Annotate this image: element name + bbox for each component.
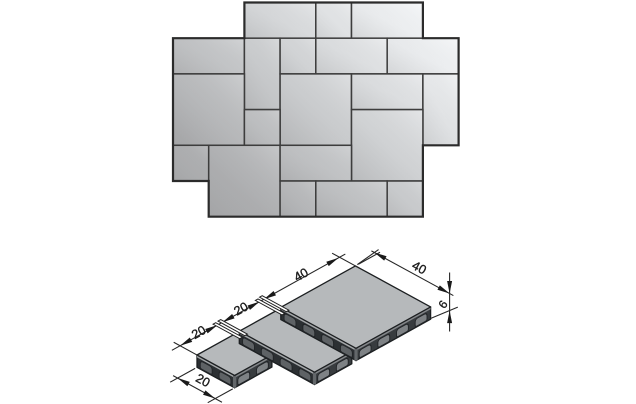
svg-text:6: 6 <box>435 297 451 311</box>
svg-text:40: 40 <box>292 265 311 284</box>
svg-text:40: 40 <box>410 258 429 277</box>
